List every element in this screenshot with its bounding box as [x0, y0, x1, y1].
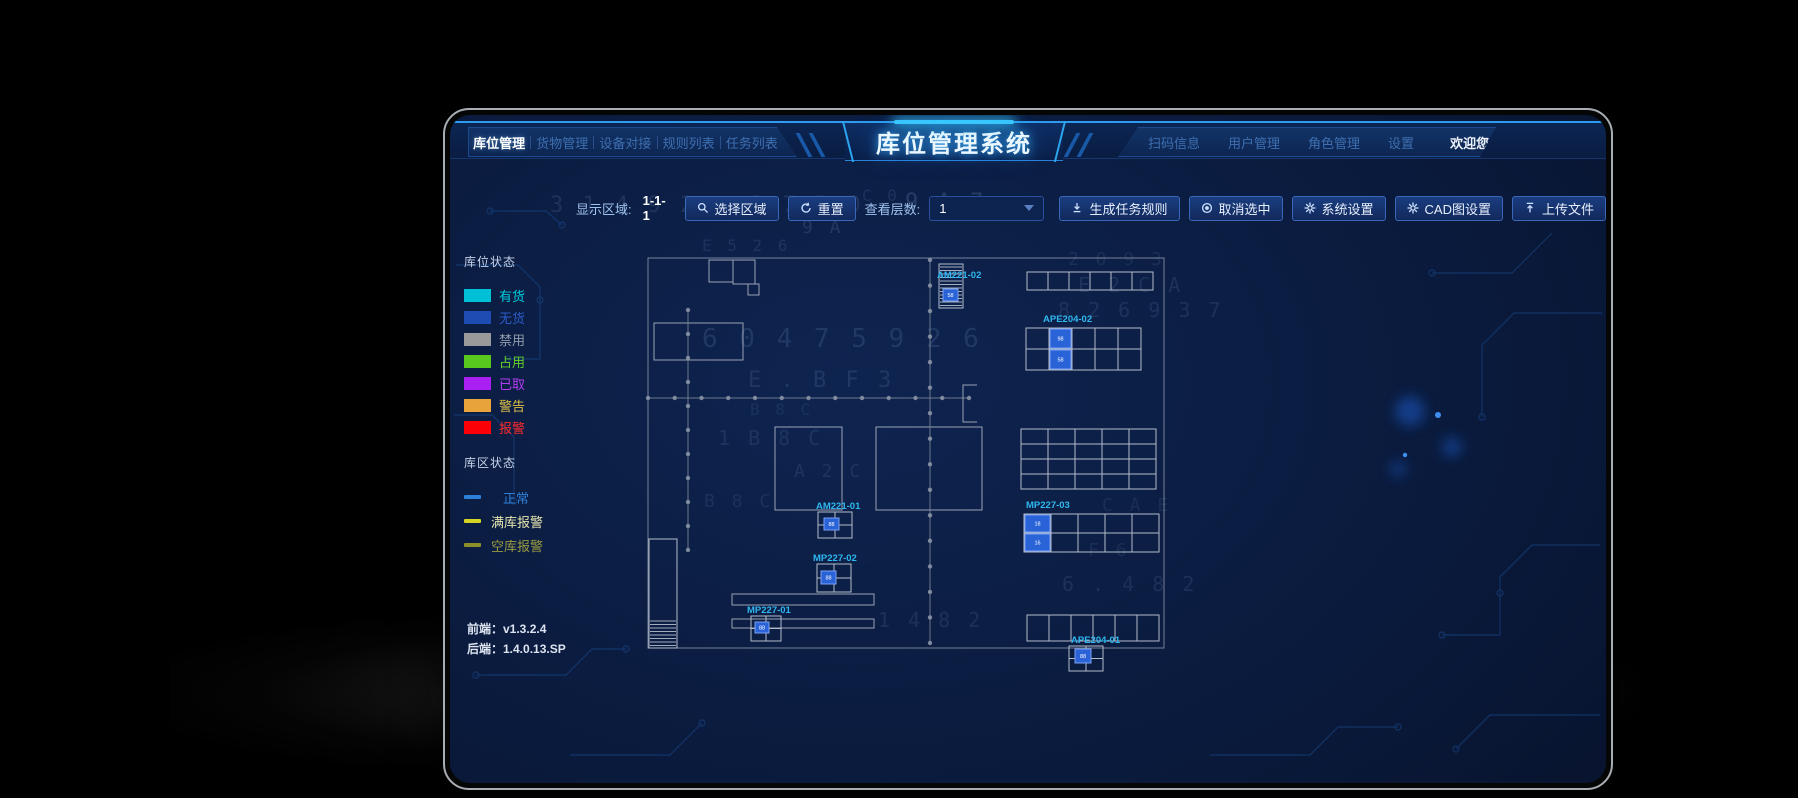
conveyor-node: [928, 462, 932, 466]
conveyor-node: [887, 396, 891, 400]
conveyor-node: [686, 524, 690, 528]
legend-label: 禁用: [499, 330, 525, 349]
bg-digits: A 2 C: [794, 461, 863, 482]
conveyor-node: [686, 500, 690, 504]
bg-digits: 2 0 9 3: [1068, 249, 1165, 270]
reset-label: 重置: [818, 199, 844, 218]
conveyor-node: [833, 396, 837, 400]
bg-digits: 1 B 8 C: [718, 426, 823, 450]
map-room: [733, 260, 755, 284]
conveyor-node: [646, 396, 650, 400]
conveyor-node: [686, 428, 690, 432]
system-settings-button[interactable]: 系统设置: [1292, 196, 1386, 221]
map-room: [732, 619, 874, 628]
map-room: [732, 594, 874, 605]
nav-item-settings[interactable]: 设置: [1388, 133, 1414, 152]
system-settings-label: 系统设置: [1322, 199, 1374, 218]
conveyor-node: [726, 396, 730, 400]
conveyor-node: [686, 380, 690, 384]
conveyor-node: [806, 396, 810, 400]
conveyor-node: [699, 396, 703, 400]
map-room: [748, 284, 759, 295]
cell-number: 88: [759, 626, 765, 632]
legend-item-occupied: 占用: [464, 350, 543, 372]
bg-digits: F 6: [1088, 540, 1130, 561]
title-glow-bar: [894, 120, 1014, 124]
frontend-version: 前端：v1.3.2.4: [467, 619, 566, 639]
glow-dots: [1390, 396, 1462, 477]
legend-zone-empty-alarm: 空库报警: [464, 533, 543, 557]
view-layers-label: 查看层数:: [865, 199, 921, 218]
swatch-picked: [464, 377, 491, 390]
laptop-frame: 3 1 4 9 23 7 5 09 A 7C 0E 5 2 69 A6 0 4 …: [443, 108, 1613, 790]
swatch-disabled: [464, 333, 491, 346]
conveyor-node: [928, 309, 932, 313]
legend-item-has-goods: 有货: [464, 284, 543, 306]
map-bracket: [963, 385, 977, 422]
conveyor-node: [940, 396, 944, 400]
conveyor-node: [913, 396, 917, 400]
upload-file-label: 上传文件: [1542, 199, 1594, 218]
nav-right-group: 扫码信息 用户管理 角色管理 设置 欢迎您，super: [1118, 127, 1496, 157]
cell-number: 18: [1034, 522, 1040, 528]
nav-item-goods-mgmt[interactable]: 货物管理: [536, 133, 588, 152]
nav-item-rule-list[interactable]: 规则列表: [663, 133, 715, 152]
conveyor-node: [928, 615, 932, 619]
cell-number: 58: [1057, 358, 1063, 364]
nav-separator: [720, 136, 721, 149]
bg-digits: E 5 2 6: [702, 236, 790, 255]
rack-label: APE204-01: [1071, 635, 1121, 646]
layer-select-value: 1: [939, 201, 946, 216]
rack-label: AM221-02: [937, 270, 981, 281]
cad-settings-button[interactable]: CAD图设置: [1395, 196, 1503, 221]
dash-normal: [464, 495, 481, 499]
bg-digits: B 8 C: [750, 400, 813, 419]
slot-status-title: 库位状态: [464, 253, 543, 270]
top-nav: 库位管理 货物管理 设备对接 规则列表 任务列表 库位管理系统: [450, 121, 1606, 159]
cell-number: 88: [828, 522, 834, 528]
version-info: 前端：v1.3.2.4 后端：1.4.0.13.SP: [467, 619, 566, 659]
legend-item-disabled: 禁用: [464, 328, 543, 350]
cad-settings-label: CAD图设置: [1425, 199, 1491, 218]
swatch-no-goods: [464, 311, 491, 324]
legend-label: 已取: [499, 374, 525, 393]
conveyor-node: [928, 334, 932, 338]
legend-zone-normal: 正常: [464, 485, 543, 509]
conveyor-node: [686, 332, 690, 336]
upload-file-button[interactable]: 上传文件: [1512, 196, 1606, 221]
target-icon: [1201, 202, 1213, 214]
rack-label: MP227-03: [1026, 500, 1070, 511]
conveyor-node: [686, 356, 690, 360]
cell-number: 88: [1080, 654, 1086, 660]
conveyor-node: [928, 385, 932, 389]
legend-item-warning: 警告: [464, 394, 543, 416]
reset-button[interactable]: 重置: [788, 196, 856, 221]
download-icon: [1071, 202, 1083, 214]
nav-item-task-list[interactable]: 任务列表: [726, 133, 778, 152]
toolbar: 显示区域: 1-1-1 选择区域 重置 查看层数:: [576, 195, 1606, 221]
upload-icon: [1524, 202, 1536, 214]
legend-item-alarm: 报警: [464, 416, 543, 438]
legend-item-no-goods: 无货: [464, 306, 543, 328]
nav-item-user-mgmt[interactable]: 用户管理: [1228, 133, 1280, 152]
cell-number: 16: [1034, 541, 1040, 547]
conveyor-node: [686, 452, 690, 456]
conveyor-node: [928, 564, 932, 568]
nav-decor-slashes-right: [1070, 133, 1087, 157]
layer-select[interactable]: 1: [929, 196, 1044, 221]
zone-status-title: 库区状态: [464, 454, 543, 471]
nav-item-role-mgmt[interactable]: 角色管理: [1308, 133, 1360, 152]
user-menu-caret-icon[interactable]: [1565, 139, 1577, 146]
legend-label: 有货: [499, 286, 525, 305]
swatch-warning: [464, 399, 491, 412]
conveyor-node: [928, 488, 932, 492]
nav-item-device-dock[interactable]: 设备对接: [599, 133, 651, 152]
refresh-icon: [800, 202, 812, 214]
app-screen: 3 1 4 9 23 7 5 09 A 7C 0E 5 2 69 A6 0 4 …: [450, 115, 1606, 783]
conveyor-node: [928, 258, 932, 262]
rack-label: MP227-01: [747, 605, 792, 616]
dash-empty-alarm: [464, 543, 481, 547]
conveyor-node: [780, 396, 784, 400]
nav-left-group: 库位管理 货物管理 设备对接 规则列表 任务列表: [468, 127, 797, 157]
conveyor-node: [928, 513, 932, 517]
rack-label: MP227-02: [813, 553, 857, 564]
cell-number: 88: [825, 576, 831, 582]
bg-digits: B 8 C: [704, 491, 773, 512]
legend-label: 正常: [503, 488, 529, 507]
bg-digits: E . B F 3: [748, 368, 894, 393]
nav-separator: [657, 136, 658, 149]
swatch-has-goods: [464, 289, 491, 302]
cancel-selected-button[interactable]: 取消选中: [1189, 196, 1283, 221]
nav-item-scan-info[interactable]: 扫码信息: [1148, 133, 1200, 152]
conveyor-node: [928, 437, 932, 441]
map-room: [709, 260, 733, 282]
search-icon: [697, 202, 709, 214]
rack-label: APE204-02: [1043, 314, 1092, 325]
conveyor-node: [686, 476, 690, 480]
bg-digits: 6 0 4 7 5 9 2 6: [702, 324, 982, 354]
display-area-value: 1-1-1: [643, 193, 672, 223]
bg-digits: E 2 C A: [1078, 273, 1183, 297]
bg-digits: C A E: [1102, 495, 1171, 516]
conveyor-node: [686, 308, 690, 312]
generate-task-rule-label: 生成任务规则: [1089, 199, 1167, 218]
conveyor-node: [967, 396, 971, 400]
display-area-label: 显示区域:: [576, 199, 632, 218]
swatch-occupied: [464, 355, 491, 368]
gear-icon: [1407, 202, 1419, 214]
page-title: 库位管理系统: [876, 124, 1032, 159]
generate-task-rule-button[interactable]: 生成任务规则: [1059, 196, 1179, 221]
conveyor-node: [928, 641, 932, 645]
legend-item-picked: 已取: [464, 372, 543, 394]
conveyor-node: [928, 411, 932, 415]
conveyor-node: [673, 396, 677, 400]
bg-digits: 1 4 8 2: [878, 608, 983, 632]
conveyor-node: [753, 396, 757, 400]
legend-label: 满库报警: [491, 512, 543, 531]
legend-zone-full-alarm: 满库报警: [464, 509, 543, 533]
gear-icon: [1304, 202, 1316, 214]
cancel-selected-label: 取消选中: [1219, 199, 1271, 218]
select-area-label: 选择区域: [715, 199, 767, 218]
legend-label: 占用: [499, 352, 525, 371]
conveyor-node: [860, 396, 864, 400]
dash-full-alarm: [464, 519, 481, 523]
nav-title-block: 库位管理系统: [845, 123, 1063, 161]
rack-label: AM221-01: [816, 501, 861, 512]
conveyor-node: [686, 404, 690, 408]
legend-label: 报警: [499, 418, 525, 437]
nav-decor-slashes-left: [802, 133, 819, 157]
legend-label: 空库报警: [491, 536, 543, 555]
conveyor-node: [928, 360, 932, 364]
conveyor-node: [928, 539, 932, 543]
select-area-button[interactable]: 选择区域: [685, 196, 779, 221]
conveyor-node: [928, 283, 932, 287]
welcome-user-label[interactable]: 欢迎您，super: [1450, 133, 1537, 152]
backend-version: 后端：1.4.0.13.SP: [467, 639, 566, 659]
bg-digits: 6 . 4 8 2: [1062, 572, 1197, 596]
cell-number: 58: [947, 293, 953, 299]
legend-panel: 库位状态 有货 无货 禁用 占用 已取: [464, 253, 543, 557]
swatch-alarm: [464, 421, 491, 434]
legend-label: 无货: [499, 308, 525, 327]
cell-number: 98: [1057, 337, 1063, 343]
nav-separator: [530, 136, 531, 149]
nav-separator: [593, 136, 594, 149]
conveyor-node: [686, 548, 690, 552]
conveyor-node: [928, 590, 932, 594]
chevron-down-icon: [1024, 205, 1034, 211]
legend-label: 警告: [499, 396, 525, 415]
nav-item-storage-mgmt[interactable]: 库位管理: [473, 133, 525, 152]
